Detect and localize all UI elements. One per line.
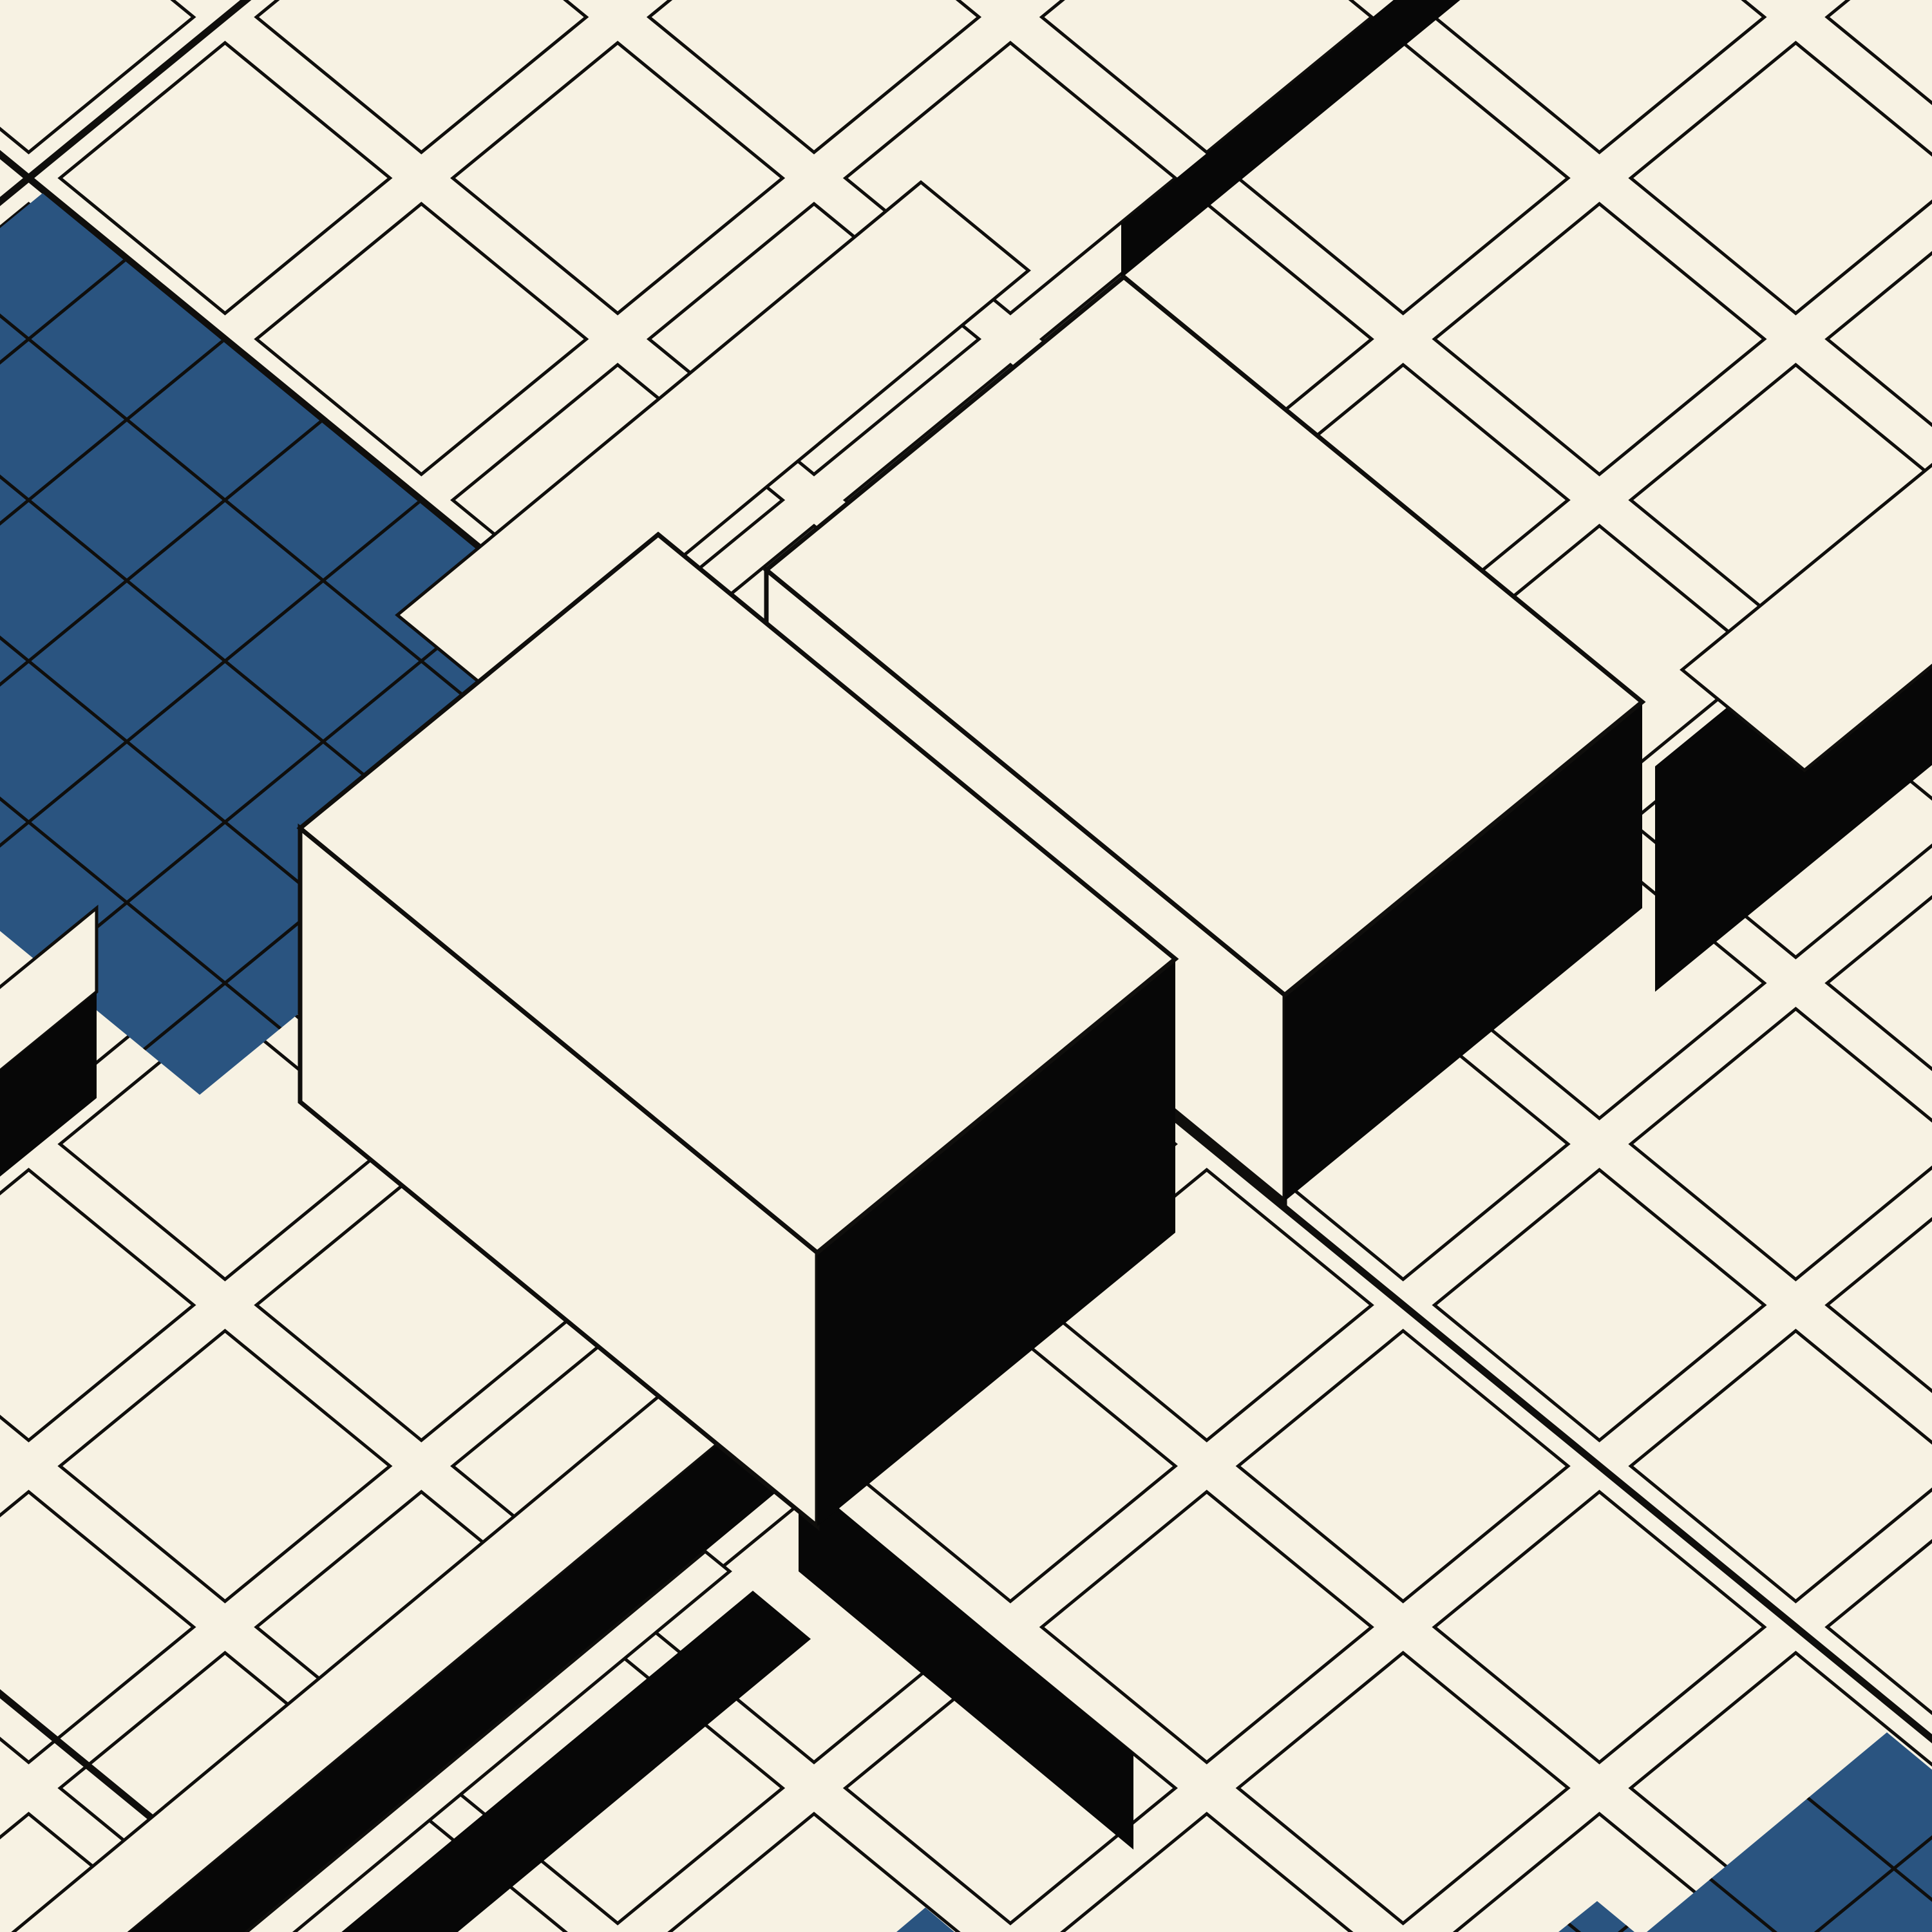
isometric-city-artwork <box>0 0 1932 1932</box>
artwork-stage <box>0 0 1932 1932</box>
